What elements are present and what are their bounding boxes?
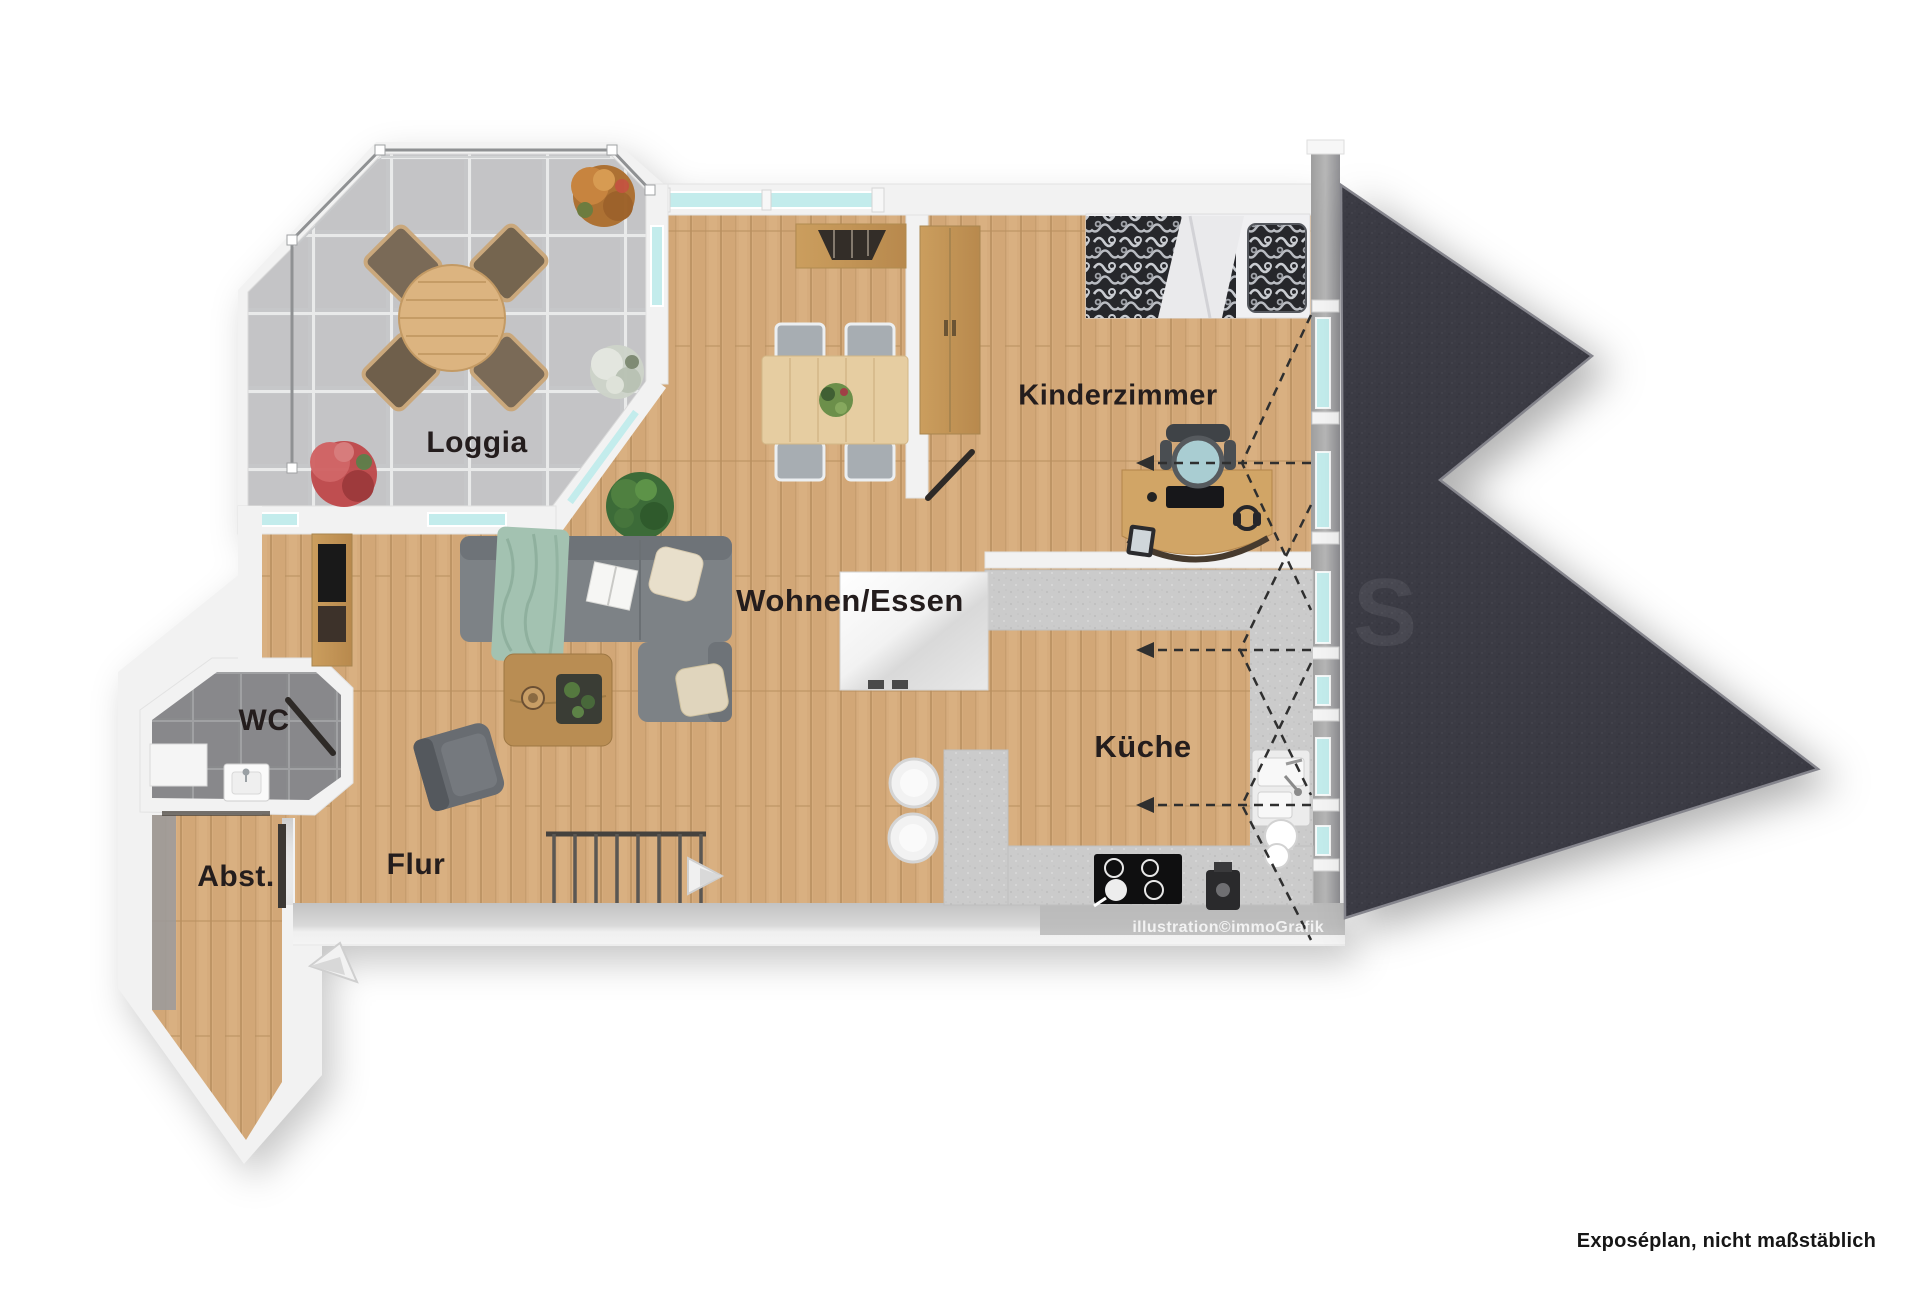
- room-label-wc: WC: [239, 704, 290, 738]
- dining-chair: [776, 442, 824, 480]
- kitchen-peninsula: [944, 750, 1008, 905]
- roof-watermark-letter: S: [1353, 559, 1417, 666]
- bed-pillow: [1248, 224, 1306, 312]
- east-exterior-wall: [1311, 150, 1340, 944]
- room-label-loggia: Loggia: [426, 426, 527, 460]
- bed: [1086, 214, 1310, 318]
- room-label-kueche: Küche: [1094, 729, 1191, 765]
- throw-blanket: [491, 526, 570, 664]
- illustration-credit: illustration©immoGrafik: [1132, 919, 1324, 937]
- roof-section: S: [1341, 185, 1818, 918]
- floor-plan-drawing: S: [0, 0, 1920, 1294]
- wc-cabinet: [150, 744, 207, 786]
- kitchen-sink: [1252, 750, 1310, 826]
- room-label-kinderzimmer: Kinderzimmer: [1018, 380, 1217, 413]
- dining-chair: [846, 442, 894, 480]
- room-label-abstellraum: Abst.: [197, 860, 275, 894]
- coffee-table: [504, 654, 612, 746]
- scale-disclaimer: Exposéplan, nicht maßstäblich: [1577, 1230, 1876, 1253]
- kitchen-counter-top: [985, 570, 1313, 630]
- open-book: [586, 562, 637, 610]
- loggia-side-window: [651, 226, 663, 306]
- cooktop: [1094, 854, 1182, 906]
- table-plant: [819, 383, 853, 417]
- pillow: [674, 662, 730, 718]
- room-label-wohnen-essen: Wohnen/Essen: [736, 583, 964, 619]
- plant-green: [606, 472, 674, 540]
- loggia-door-window: [428, 513, 506, 526]
- living-top-window: [666, 192, 878, 208]
- plant-white: [590, 345, 644, 399]
- floor-plan-page: S Loggia Wohnen/Essen Kinderzimmer Küche…: [0, 0, 1920, 1294]
- room-label-flur: Flur: [387, 848, 446, 882]
- storage-shelf: [152, 815, 176, 1010]
